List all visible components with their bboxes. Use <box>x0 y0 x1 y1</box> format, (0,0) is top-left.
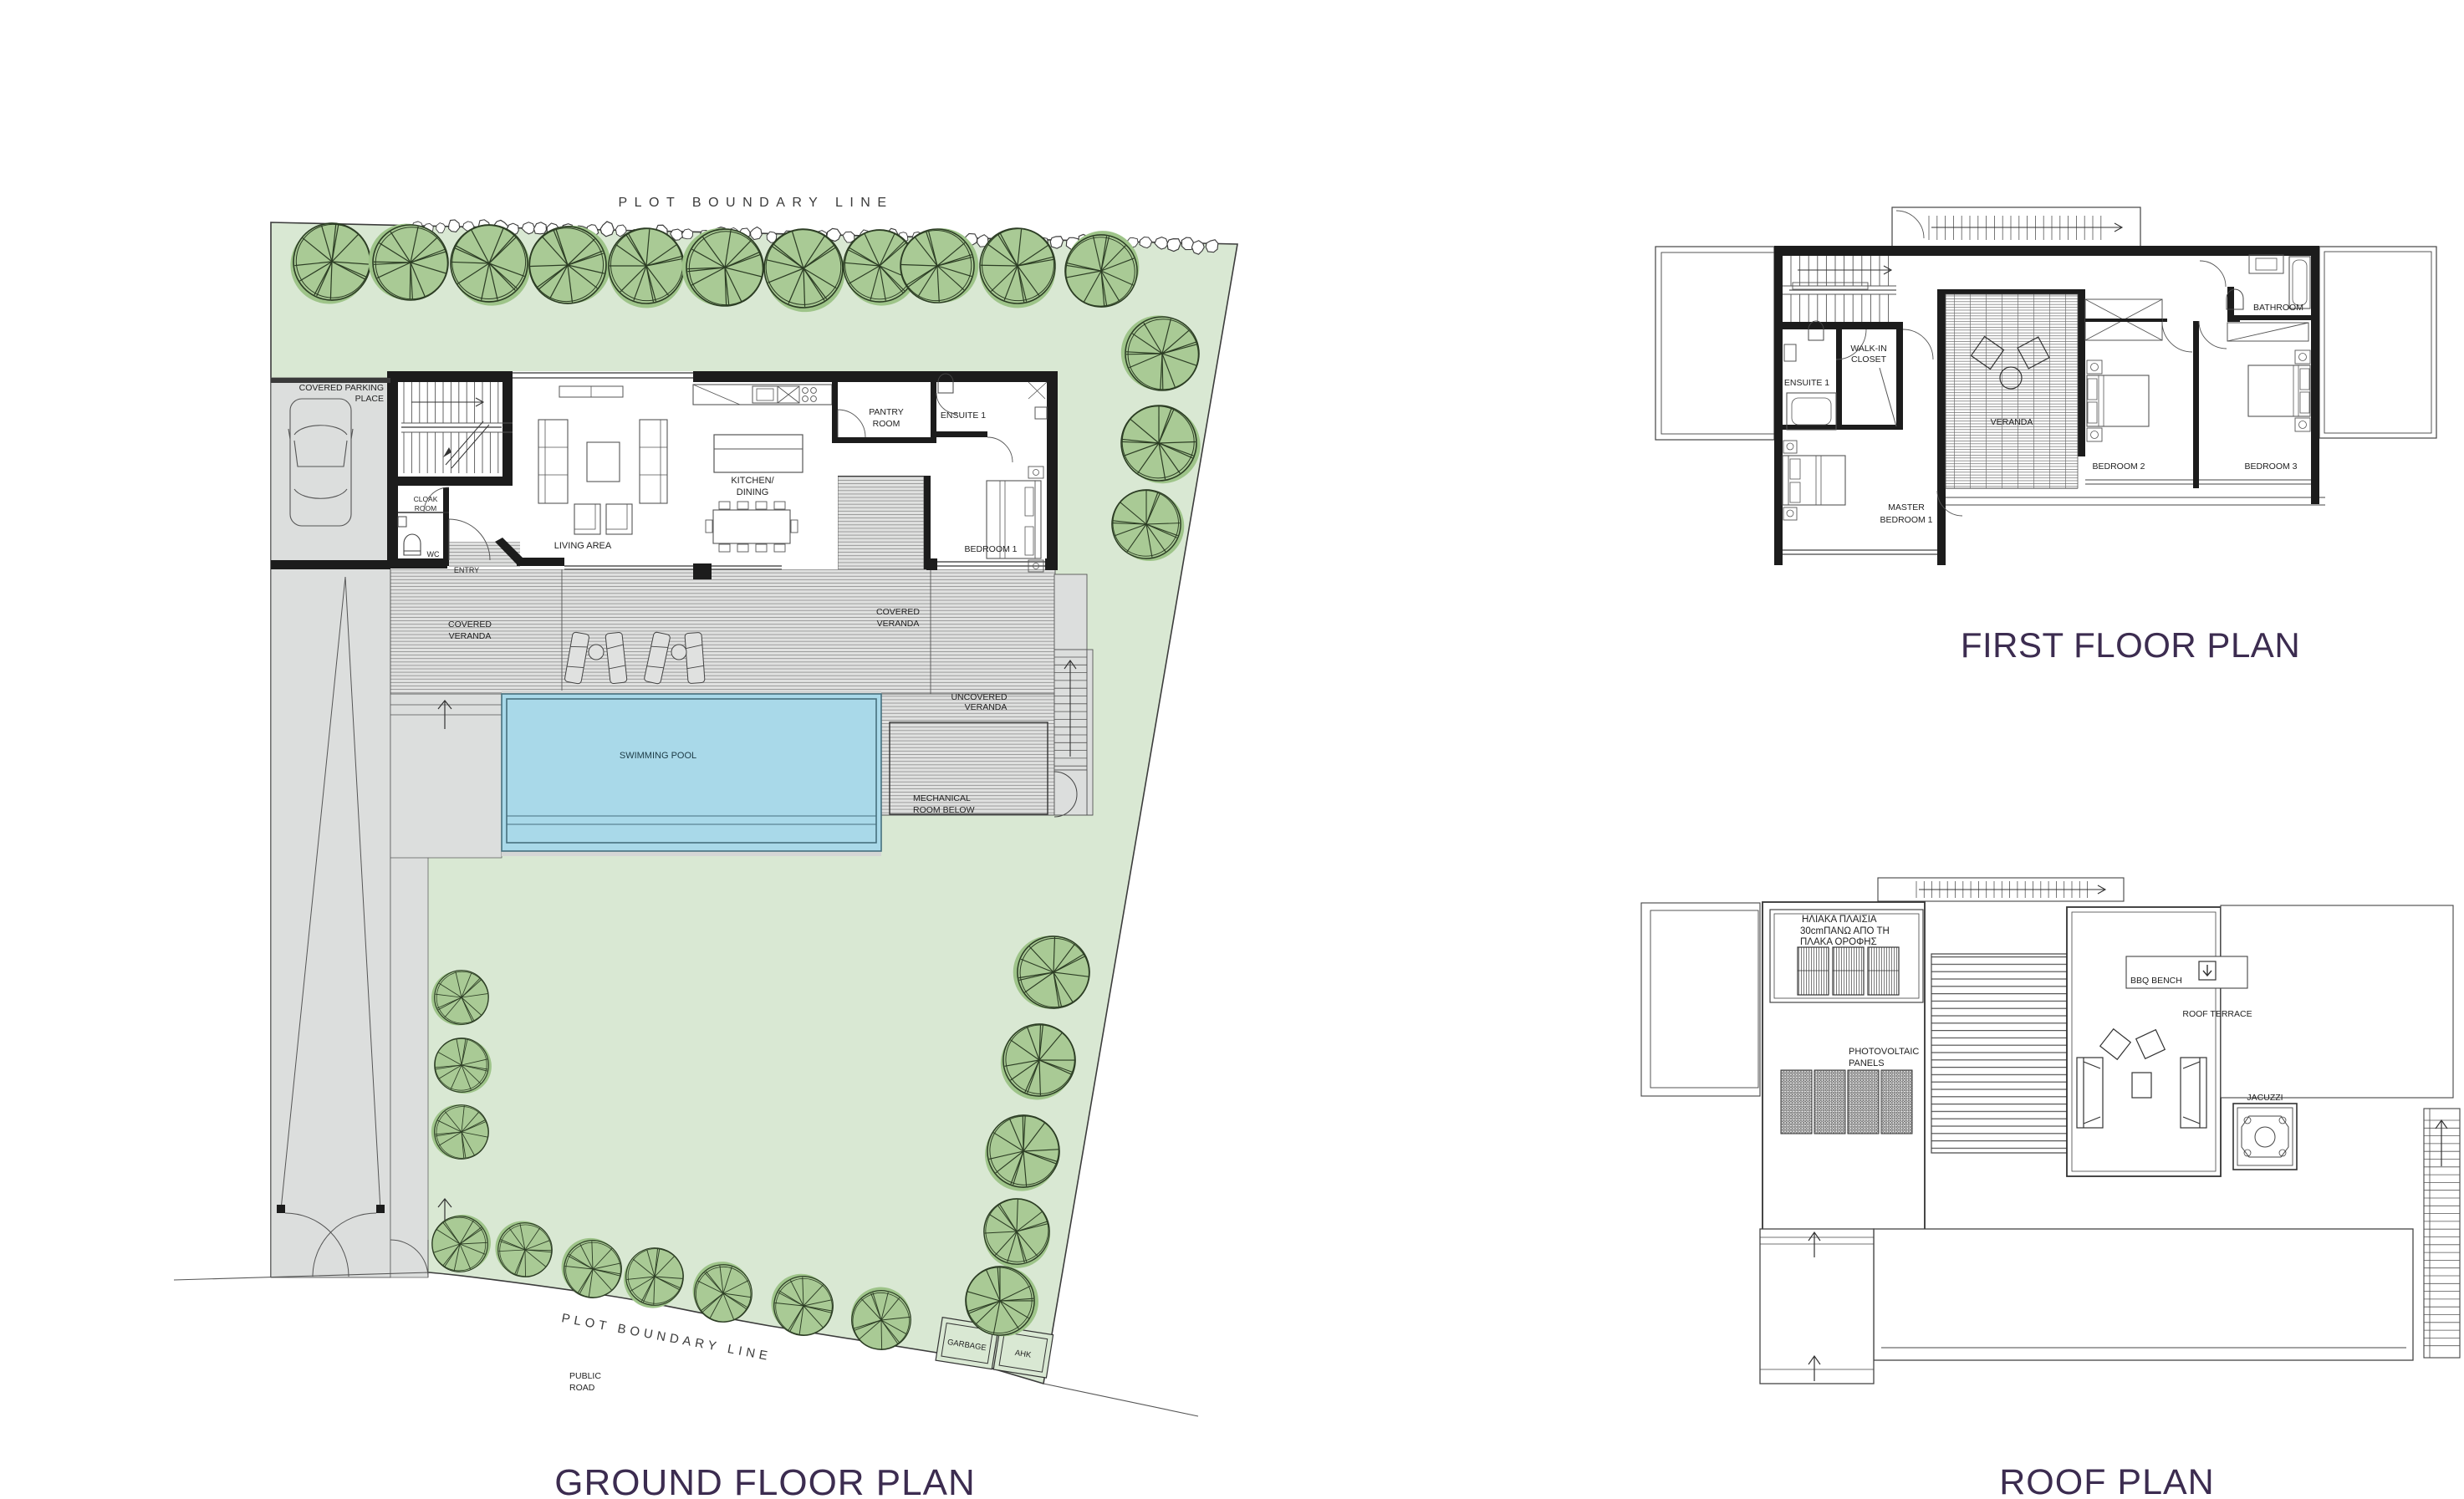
svg-text:ROOM BELOW: ROOM BELOW <box>913 805 975 815</box>
svg-text:ENSUITE 1: ENSUITE 1 <box>1784 378 1829 388</box>
svg-text:BEDROOM 1: BEDROOM 1 <box>964 544 1017 554</box>
svg-text:DINING: DINING <box>737 487 769 497</box>
svg-text:ΗΛΙΑΚΑ ΠΛΑΙΣΙΑ: ΗΛΙΑΚΑ ΠΛΑΙΣΙΑ <box>1802 915 1877 925</box>
svg-text:ΠΛΑΚΑ ΟΡΟΦΗΣ: ΠΛΑΚΑ ΟΡΟΦΗΣ <box>1800 937 1877 947</box>
svg-text:ROAD: ROAD <box>569 1383 595 1393</box>
svg-text:MASTER: MASTER <box>1888 502 1925 512</box>
svg-text:COVERED PARKING: COVERED PARKING <box>299 383 384 393</box>
svg-text:KITCHEN/: KITCHEN/ <box>731 476 774 486</box>
svg-text:JACUZZI: JACUZZI <box>2247 1093 2283 1103</box>
svg-text:ROOM: ROOM <box>415 504 436 512</box>
svg-text:VERANDA: VERANDA <box>877 619 920 629</box>
svg-text:PANELS: PANELS <box>1849 1058 1885 1068</box>
svg-text:FIRST FLOOR PLAN: FIRST FLOOR PLAN <box>1961 625 2300 665</box>
svg-text:VERANDA: VERANDA <box>965 702 1008 712</box>
svg-text:WC: WC <box>427 550 440 558</box>
svg-text:BEDROOM 1: BEDROOM 1 <box>1880 515 1932 525</box>
svg-text:CLOSET: CLOSET <box>1851 354 1887 365</box>
svg-text:PLACE: PLACE <box>355 394 384 404</box>
svg-text:BATHROOM: BATHROOM <box>2253 303 2303 313</box>
svg-text:ENSUITE 1: ENSUITE 1 <box>941 410 986 421</box>
svg-text:SWIMMING POOL: SWIMMING POOL <box>620 751 696 761</box>
svg-text:PUBLIC: PUBLIC <box>569 1371 601 1381</box>
svg-text:ROOF TERRACE: ROOF TERRACE <box>2182 1009 2252 1019</box>
svg-text:BBQ BENCH: BBQ BENCH <box>2130 976 2182 986</box>
svg-text:30cmΠΑΝΩ ΑΠΟ ΤΗ: 30cmΠΑΝΩ ΑΠΟ ΤΗ <box>1800 926 1890 936</box>
svg-text:PANTRY: PANTRY <box>869 407 904 417</box>
svg-text:VERANDA: VERANDA <box>449 631 492 641</box>
svg-text:BEDROOM 2: BEDROOM 2 <box>2092 461 2145 472</box>
svg-text:PLOT BOUNDARY LINE: PLOT BOUNDARY LINE <box>618 196 893 210</box>
svg-text:VERANDA: VERANDA <box>1991 417 2033 427</box>
svg-text:ROOF PLAN: ROOF PLAN <box>1999 1462 2215 1499</box>
svg-text:GROUND FLOOR PLAN: GROUND FLOOR PLAN <box>554 1462 976 1499</box>
svg-text:UNCOVERED: UNCOVERED <box>951 692 1008 702</box>
svg-text:LIVING AREA: LIVING AREA <box>554 541 612 551</box>
svg-text:COVERED: COVERED <box>448 619 492 630</box>
svg-text:MECHANICAL: MECHANICAL <box>913 793 971 803</box>
svg-text:BEDROOM 3: BEDROOM 3 <box>2244 461 2297 472</box>
svg-text:ENTRY: ENTRY <box>454 566 479 574</box>
svg-text:PHOTOVOLTAIC: PHOTOVOLTAIC <box>1849 1047 1919 1057</box>
svg-text:COVERED: COVERED <box>876 607 920 617</box>
svg-text:ROOM: ROOM <box>873 419 900 429</box>
